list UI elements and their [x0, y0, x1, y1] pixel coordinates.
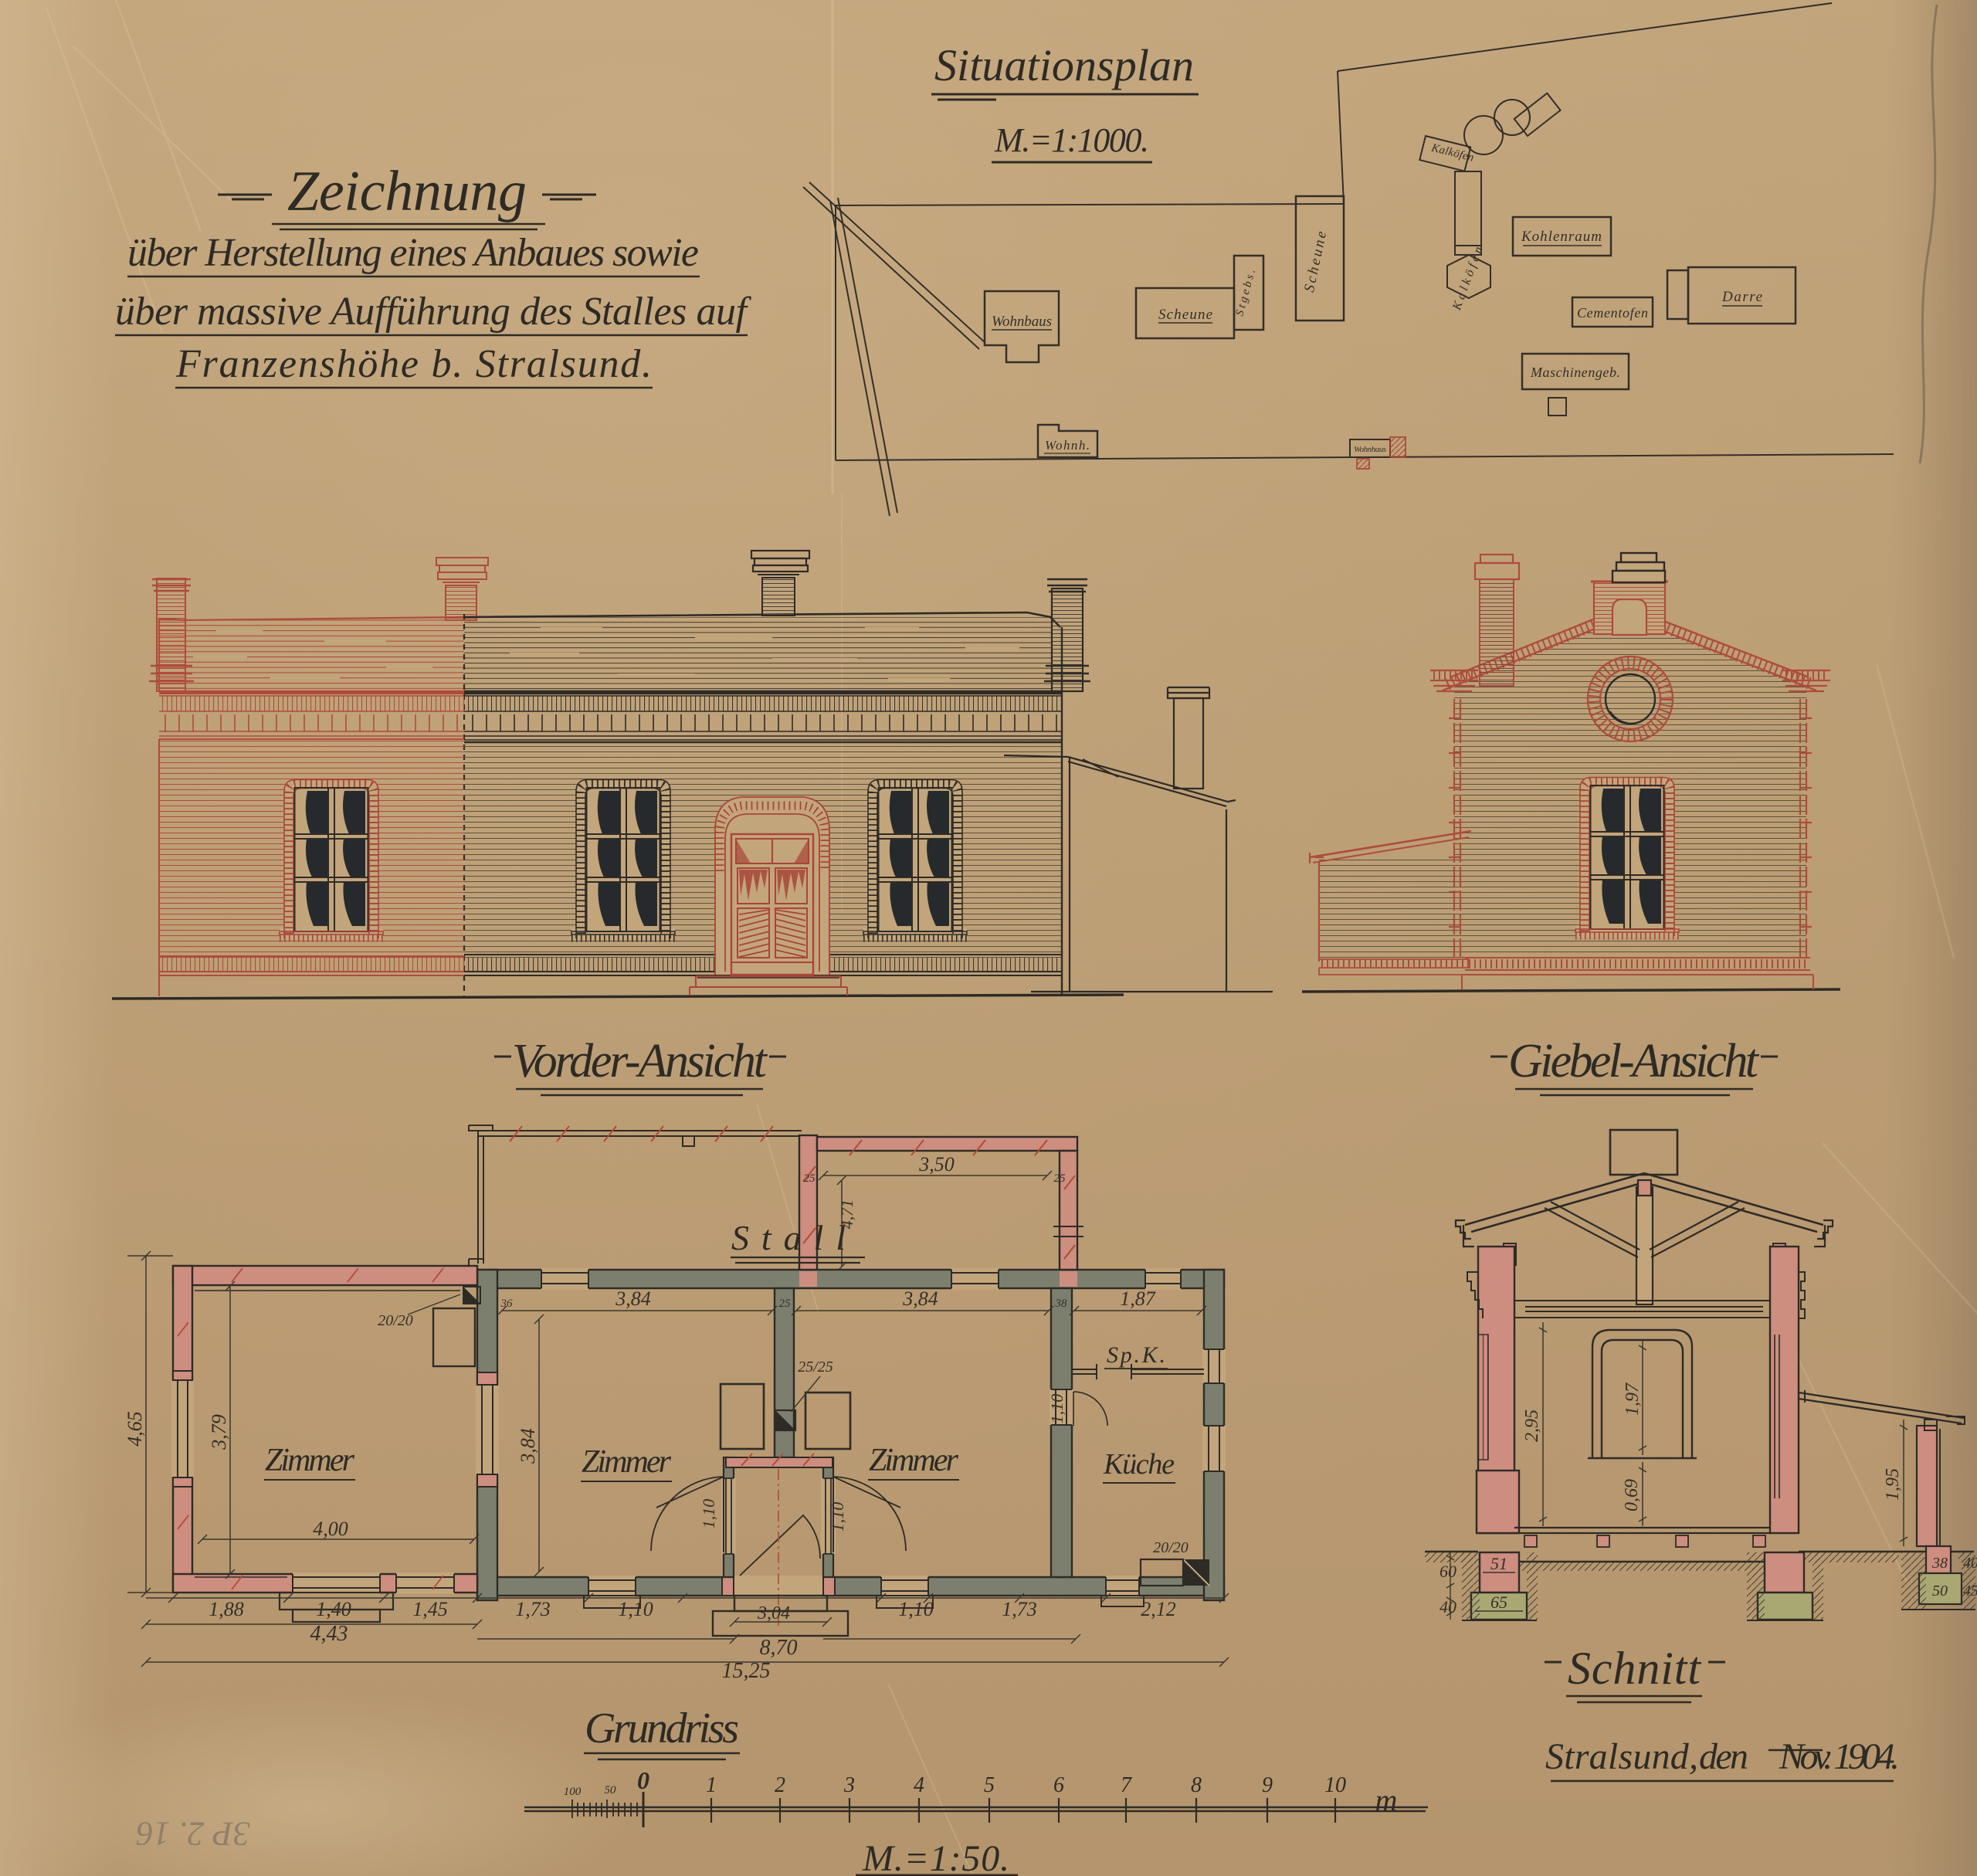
svg-text:Küche: Küche: [1103, 1448, 1175, 1481]
svg-text:1,10: 1,10: [898, 1598, 934, 1620]
svg-text:Zeichnung: Zeichnung: [287, 160, 527, 223]
svg-text:60: 60: [1440, 1562, 1456, 1581]
svg-text:Situationsplan: Situationsplan: [934, 40, 1194, 90]
svg-text:1,40: 1,40: [316, 1598, 351, 1620]
svg-text:4,00: 4,00: [313, 1518, 348, 1540]
svg-text:M.=1:1000.: M.=1:1000.: [994, 121, 1149, 159]
svg-text:Wohnhaus: Wohnhaus: [1354, 445, 1386, 454]
svg-text:1,45: 1,45: [412, 1598, 448, 1620]
svg-text:40: 40: [1963, 1555, 1977, 1572]
svg-text:2,12: 2,12: [1141, 1598, 1176, 1620]
svg-text:Giebel-Ansicht: Giebel-Ansicht: [1508, 1035, 1760, 1087]
svg-text:8: 8: [1191, 1773, 1202, 1797]
svg-text:38: 38: [1931, 1555, 1948, 1572]
svg-text:4,65: 4,65: [124, 1411, 146, 1447]
svg-text:1,88: 1,88: [209, 1598, 244, 1620]
svg-text:1,73: 1,73: [1002, 1598, 1037, 1620]
svg-text:1: 1: [706, 1773, 717, 1797]
svg-text:1,10: 1,10: [828, 1502, 847, 1532]
svg-text:100: 100: [564, 1786, 582, 1798]
svg-text:Kohlenraum: Kohlenraum: [1521, 229, 1602, 245]
svg-text:15,25: 15,25: [722, 1659, 771, 1683]
svg-text:51: 51: [1490, 1554, 1507, 1573]
svg-text:50: 50: [605, 1784, 617, 1796]
svg-text:3P 2. 16: 3P 2. 16: [136, 1815, 250, 1853]
svg-text:Nov. 1904.: Nov. 1904.: [1779, 1736, 1900, 1777]
svg-text:1,10: 1,10: [618, 1598, 653, 1620]
svg-text:Franzenshöhe b. Stralsund.: Franzenshöhe b. Stralsund.: [175, 342, 652, 386]
svg-text:10: 10: [1324, 1773, 1346, 1797]
svg-text:2: 2: [775, 1773, 785, 1797]
svg-text:über massive Aufführung des St: über massive Aufführung des Stalles auf: [115, 290, 752, 334]
svg-text:20/20: 20/20: [378, 1312, 413, 1329]
svg-text:1,73: 1,73: [515, 1598, 551, 1620]
svg-text:6: 6: [1053, 1773, 1064, 1797]
svg-text:45: 45: [1963, 1583, 1977, 1600]
svg-text:Schnitt: Schnitt: [1568, 1643, 1701, 1694]
svg-text:0,69: 0,69: [1622, 1479, 1642, 1511]
svg-text:25/25: 25/25: [798, 1359, 833, 1376]
svg-text:1,95: 1,95: [1883, 1468, 1903, 1501]
svg-text:M.=1:50.: M.=1:50.: [862, 1838, 1009, 1876]
svg-text:3,04: 3,04: [757, 1603, 790, 1623]
svg-text:Stralsund,: Stralsund,: [1545, 1736, 1698, 1777]
svg-text:Maschinengeb.: Maschinengeb.: [1530, 365, 1620, 380]
svg-text:25: 25: [804, 1172, 816, 1185]
svg-text:9: 9: [1262, 1773, 1273, 1797]
svg-text:Zimmer: Zimmer: [265, 1443, 355, 1478]
svg-text:3,84: 3,84: [615, 1287, 651, 1310]
svg-text:38: 38: [1055, 1298, 1068, 1310]
svg-text:Wohnbaus: Wohnbaus: [992, 314, 1052, 330]
svg-text:3,84: 3,84: [517, 1428, 539, 1464]
svg-text:1,10: 1,10: [699, 1499, 718, 1529]
svg-text:Zimmer: Zimmer: [582, 1444, 672, 1480]
svg-text:Cementofen: Cementofen: [1577, 305, 1648, 321]
svg-text:1,10: 1,10: [1047, 1394, 1066, 1424]
svg-text:Wohnh.: Wohnh.: [1045, 438, 1090, 453]
svg-text:2,95: 2,95: [1522, 1410, 1542, 1442]
svg-text:50: 50: [1932, 1583, 1948, 1600]
svg-text:3: 3: [843, 1773, 855, 1797]
svg-text:3,84: 3,84: [902, 1287, 938, 1310]
svg-text:65: 65: [1490, 1593, 1507, 1612]
svg-text:3,79: 3,79: [208, 1414, 230, 1450]
svg-text:20/20: 20/20: [1153, 1539, 1189, 1556]
svg-text:Zimmer: Zimmer: [869, 1443, 959, 1478]
svg-text:m: m: [1375, 1783, 1398, 1817]
svg-text:25: 25: [1054, 1172, 1066, 1185]
svg-text:3,50: 3,50: [918, 1153, 955, 1175]
svg-text:36: 36: [500, 1298, 514, 1310]
svg-text:0: 0: [637, 1766, 649, 1794]
svg-text:über Herstellung eines Anbaues: über Herstellung eines Anbaues sowie: [127, 231, 699, 275]
svg-text:Grundriss: Grundriss: [585, 1705, 739, 1752]
svg-text:Vorder-Ansicht: Vorder-Ansicht: [512, 1035, 768, 1087]
svg-text:Stall: Stall: [731, 1218, 863, 1257]
svg-text:Sp.K.: Sp.K.: [1107, 1342, 1165, 1368]
svg-text:25: 25: [779, 1298, 792, 1310]
svg-text:den: den: [1699, 1736, 1748, 1777]
svg-text:Darre: Darre: [1721, 289, 1762, 305]
svg-text:5: 5: [984, 1773, 995, 1797]
svg-text:4,43: 4,43: [310, 1622, 348, 1646]
svg-text:7: 7: [1121, 1773, 1132, 1797]
svg-text:4: 4: [914, 1773, 924, 1797]
svg-text:1,87: 1,87: [1120, 1287, 1156, 1310]
svg-text:8,70: 8,70: [760, 1636, 798, 1660]
svg-text:1,97: 1,97: [1623, 1382, 1643, 1416]
svg-text:Scheune: Scheune: [1158, 307, 1212, 323]
svg-text:40: 40: [1440, 1597, 1456, 1616]
